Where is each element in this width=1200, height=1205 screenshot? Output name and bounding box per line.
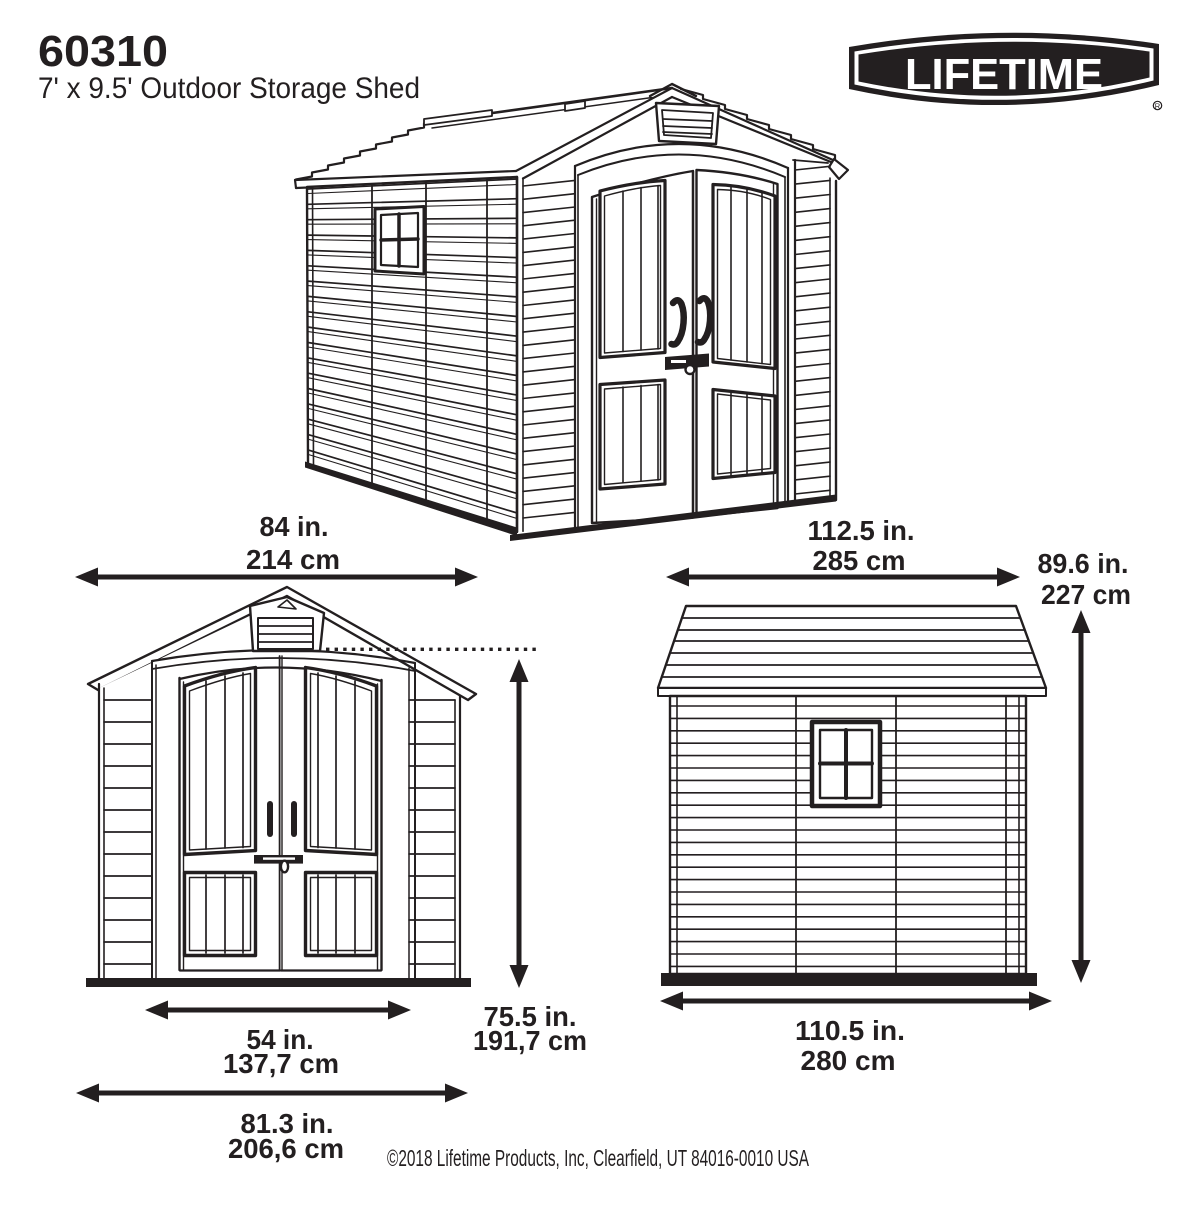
svg-text:84 in.: 84 in.	[260, 511, 329, 542]
svg-text:60310: 60310	[38, 27, 168, 76]
svg-text:285 cm: 285 cm	[813, 545, 906, 576]
svg-text:191,7 cm: 191,7 cm	[473, 1025, 587, 1056]
svg-text:R: R	[1155, 101, 1161, 110]
svg-text:110.5 in.: 110.5 in.	[795, 1015, 905, 1046]
svg-text:112.5 in.: 112.5 in.	[808, 515, 915, 546]
svg-text:227 cm: 227 cm	[1041, 579, 1131, 610]
svg-text:137,7 cm: 137,7 cm	[223, 1048, 339, 1079]
svg-text:7' x 9.5' Outdoor Storage Shed: 7' x 9.5' Outdoor Storage Shed	[38, 72, 420, 105]
svg-text:LIFETIME: LIFETIME	[905, 50, 1103, 99]
svg-text:©2018 Lifetime Products, Inc,: ©2018 Lifetime Products, Inc, Clearfield…	[387, 1145, 809, 1171]
svg-text:206,6 cm: 206,6 cm	[228, 1133, 344, 1164]
svg-text:280 cm: 280 cm	[801, 1045, 896, 1076]
svg-text:214 cm: 214 cm	[246, 544, 340, 575]
svg-text:89.6 in.: 89.6 in.	[1038, 548, 1129, 579]
